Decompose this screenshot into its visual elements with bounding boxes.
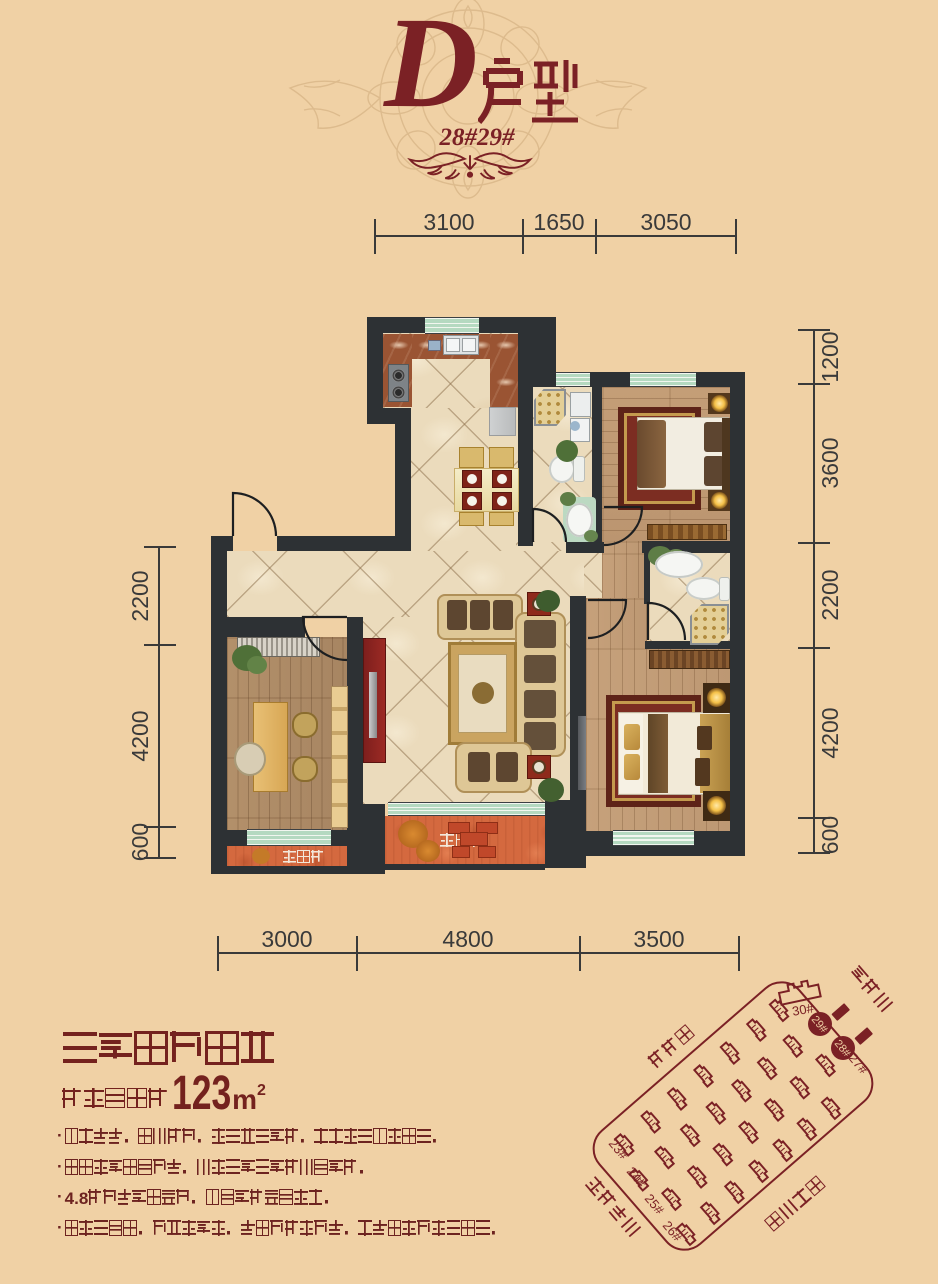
svg-text:27#: 27# [846, 1051, 872, 1078]
svg-text:3000: 3000 [261, 926, 312, 952]
svg-text:28#: 28# [832, 1038, 854, 1060]
svg-text:4800: 4800 [442, 926, 493, 952]
svg-text:2200: 2200 [817, 569, 843, 620]
svg-text:600: 600 [817, 816, 843, 854]
svg-text:29#: 29# [809, 1014, 831, 1036]
svg-text:4200: 4200 [817, 707, 843, 758]
svg-text:24#: 24# [624, 1164, 650, 1191]
svg-text:25#: 25# [642, 1191, 668, 1218]
svg-text:1200: 1200 [817, 331, 843, 382]
svg-text:3500: 3500 [633, 926, 684, 952]
svg-text:4200: 4200 [127, 710, 153, 761]
svg-text:2200: 2200 [127, 570, 153, 621]
svg-text:23#: 23# [606, 1136, 632, 1163]
svg-text:30#: 30# [791, 1000, 816, 1019]
svg-text:3600: 3600 [817, 437, 843, 488]
svg-text:26#: 26# [660, 1218, 686, 1245]
svg-text:600: 600 [127, 823, 153, 861]
